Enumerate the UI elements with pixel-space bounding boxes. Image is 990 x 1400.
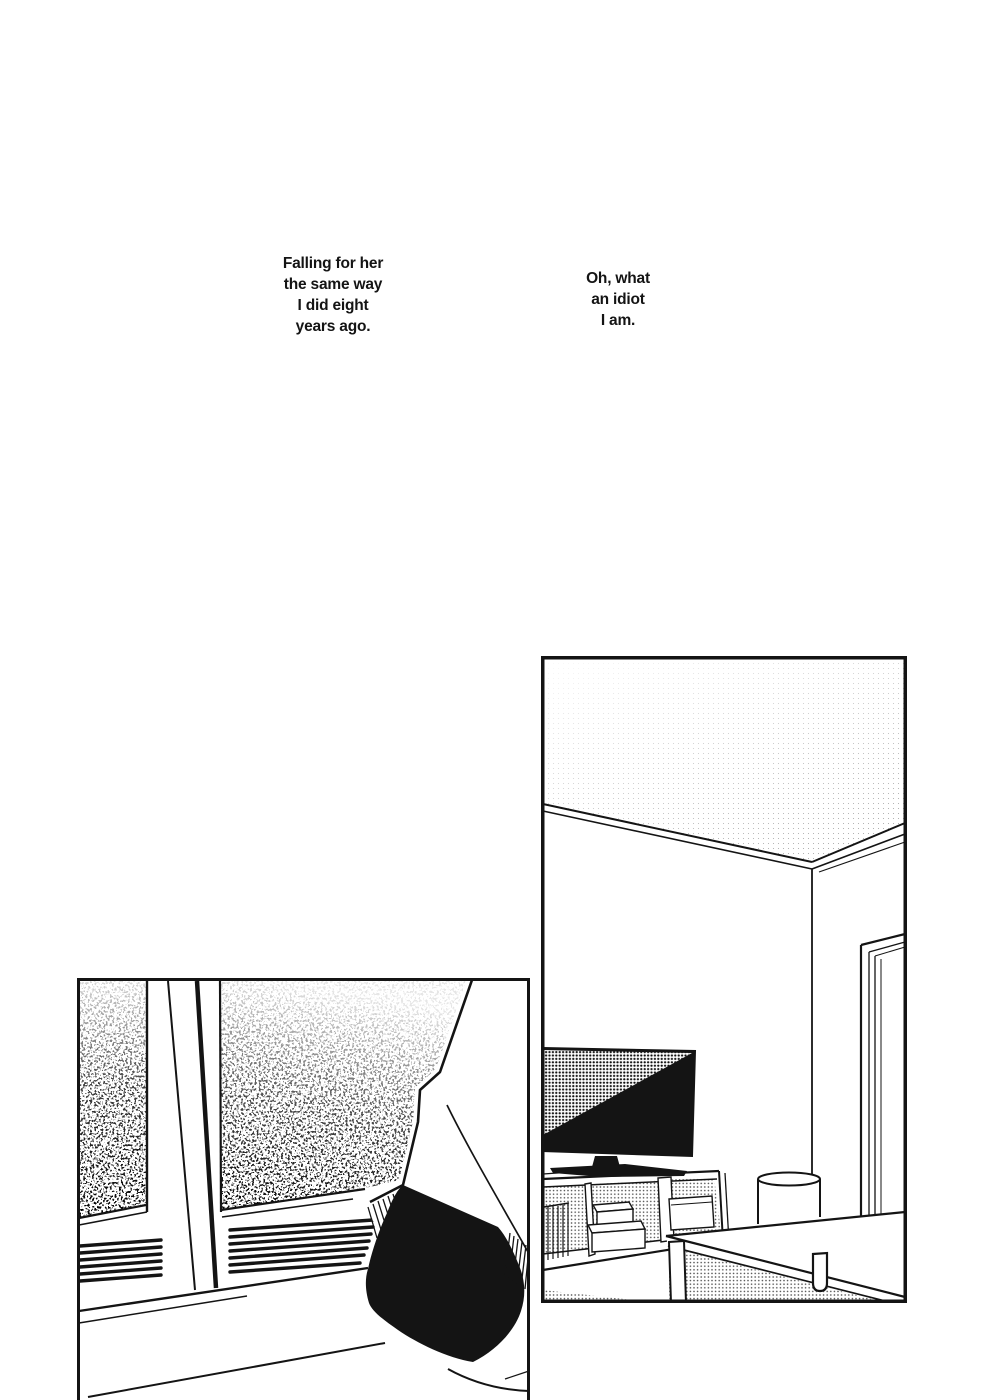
caption-line: the same way (250, 274, 416, 295)
table-back-leg (813, 1253, 827, 1291)
caption-line: I did eight (250, 295, 416, 316)
panel-living-room (541, 656, 907, 1303)
cabinet-drawer (669, 1196, 714, 1230)
table-front-leg (669, 1241, 686, 1303)
caption-line: Falling for her (250, 253, 416, 274)
manga-page: Falling for her the same way I did eight… (0, 0, 990, 1400)
caption-line: I am. (543, 310, 693, 331)
caption-line: an idiot (543, 289, 693, 310)
panel-window-figure (77, 978, 530, 1400)
narration-caption-2: Oh, what an idiot I am. (543, 268, 693, 331)
caption-line: Oh, what (543, 268, 693, 289)
window-pane-left (79, 981, 148, 1218)
caption-line: years ago. (250, 316, 416, 337)
narration-caption-1: Falling for her the same way I did eight… (250, 253, 416, 337)
